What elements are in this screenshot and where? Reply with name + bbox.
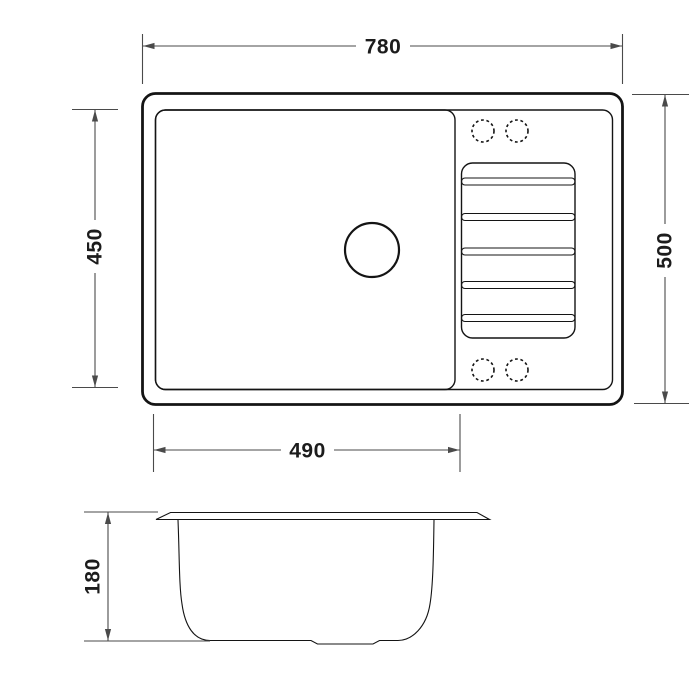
dimension-bowl-front-to-back: 450 bbox=[72, 110, 118, 388]
sink-outer-rim bbox=[143, 94, 623, 405]
drainboard-ridge bbox=[462, 248, 576, 255]
arrow-right-icon bbox=[611, 43, 623, 49]
arrow-up-icon bbox=[92, 110, 98, 122]
section-view bbox=[156, 513, 490, 645]
drainboard bbox=[462, 163, 576, 338]
arrow-right-icon bbox=[448, 447, 460, 453]
arrow-down-icon bbox=[105, 629, 111, 641]
tap-hole-top-right-icon bbox=[506, 120, 528, 142]
drainboard-panel bbox=[462, 163, 576, 338]
tap-hole-bottom-right-icon bbox=[506, 359, 528, 381]
drain-hole bbox=[345, 223, 399, 277]
tap-hole-top-left-icon bbox=[472, 120, 494, 142]
dimension-overall-depth: 500 bbox=[632, 95, 689, 404]
arrow-up-icon bbox=[105, 513, 111, 525]
top-view bbox=[143, 94, 623, 405]
arrow-up-icon bbox=[662, 95, 668, 107]
section-bowl-profile bbox=[178, 520, 434, 644]
arrow-left-icon bbox=[143, 43, 155, 49]
tap-hole-bottom-left-icon bbox=[472, 359, 494, 381]
drainboard-ridge bbox=[462, 214, 576, 221]
arrow-left-icon bbox=[154, 447, 166, 453]
drainboard-ridge bbox=[462, 315, 576, 322]
dimension-bowl-depth: 180 bbox=[82, 512, 211, 641]
dim-label-180: 180 bbox=[82, 558, 105, 595]
dimension-bowl-width: 490 bbox=[154, 414, 461, 472]
arrow-down-icon bbox=[662, 392, 668, 404]
sink-bowl-outline bbox=[156, 110, 456, 390]
sink-inner-rim bbox=[156, 110, 613, 390]
drainboard-ridge bbox=[462, 282, 576, 289]
section-rim-flange bbox=[156, 513, 490, 520]
dim-label-450: 450 bbox=[84, 228, 107, 265]
arrow-down-icon bbox=[92, 376, 98, 388]
drainboard-ridge bbox=[462, 178, 576, 185]
dim-label-780: 780 bbox=[365, 36, 402, 59]
dimension-overall-width: 780 bbox=[143, 34, 623, 84]
dim-label-500: 500 bbox=[654, 232, 677, 269]
dim-label-490: 490 bbox=[289, 440, 326, 463]
sink-technical-drawing: 780 500 450 490 bbox=[0, 0, 700, 700]
